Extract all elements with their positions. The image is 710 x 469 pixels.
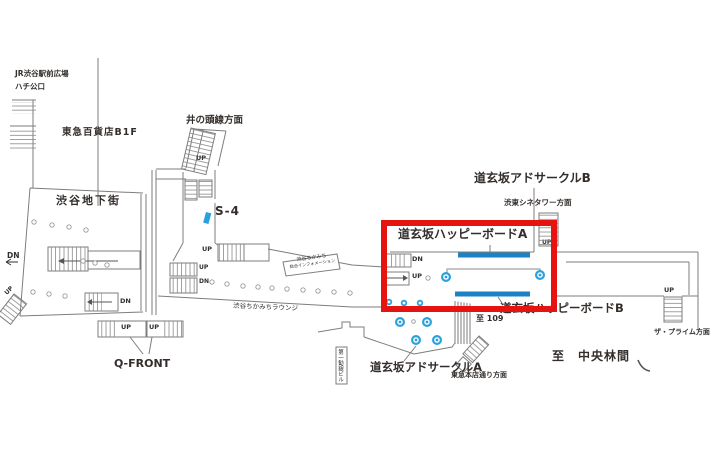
east-up-stair: [218, 244, 244, 261]
up-label-prime: UP: [664, 287, 674, 294]
dn-label-south: DN: [120, 298, 131, 305]
happy-board-a-label: 道玄坂ハッピーボードA: [398, 228, 527, 241]
prime-up-stair: [664, 297, 682, 322]
up-label-qfront-1: UP: [121, 324, 131, 331]
chikagai-stair-landing: [88, 251, 140, 269]
up-label-east-stair: UP: [202, 246, 212, 253]
dn-label-chikagai: DN: [7, 252, 20, 260]
s4-label: S-4: [215, 205, 240, 218]
to-109-label: 至 109: [476, 315, 503, 324]
stairs: [0, 102, 682, 372]
inokashira-label: 井の頭線方面: [186, 116, 243, 126]
adcircle-a-dot: [411, 335, 421, 345]
speaker-dot: [441, 272, 451, 282]
tokyu-honten-label: 東急本店通り方面: [451, 372, 507, 380]
speaker-dot: [535, 270, 545, 280]
up-label-redbox: UP: [412, 273, 422, 280]
chuorinkan-swoosh: [638, 360, 650, 371]
up-label-inokashira: UP: [196, 155, 206, 162]
adcircle-a-dot: [422, 317, 432, 327]
daiichi-building-label: 第一勧銀ビル: [337, 349, 343, 383]
shibuya-chikagai-label: 渋谷地下街: [56, 195, 121, 207]
inokashira-stair: [182, 128, 216, 175]
small-blue-dot: [417, 300, 423, 306]
pillar-bracket: [447, 269, 540, 278]
up-label-west-stair: UP: [199, 265, 208, 272]
qfront-label: Q-FRONT: [114, 358, 170, 370]
jr-plaza-label-line2: ハチ公口: [15, 83, 45, 91]
jr-stair-upper: [12, 102, 36, 114]
up-label-qfront-2: UP: [149, 324, 159, 331]
happy-board-b-bar: [455, 292, 530, 297]
adcircle-a-dot: [432, 335, 442, 345]
west-up-stair: [170, 263, 197, 276]
tokyu-dept-label: 東急百貨店B1F: [62, 128, 138, 138]
adcircle-b-label: 道玄坂アドサークルB: [474, 172, 591, 185]
jr-plaza-label-line1: JR渋谷駅前広場: [15, 70, 69, 78]
small-blue-dot: [401, 300, 407, 306]
mid-stair-left: [185, 180, 197, 200]
station-map-page: JR渋谷駅前広場 ハチ公口 東急百貨店B1F 井の頭線方面 渋谷地下街 S-4 …: [0, 0, 710, 469]
southwest-diag-stair: [0, 294, 27, 324]
cine-tower-label: 渋東シネタワー方面: [504, 199, 572, 207]
mid-stair-right: [199, 180, 212, 197]
east-up-stair-landing: [244, 244, 269, 261]
to-chuo-rinkan-label: 至 中央林間: [552, 350, 630, 363]
dn-label-west-stair: DN: [199, 279, 209, 286]
adcircle-a-dot: [395, 317, 405, 327]
station-map-drawing: [0, 0, 710, 469]
prime-label: ザ・プライム方面: [654, 329, 710, 337]
west-dn-stair: [170, 278, 197, 293]
dn-label-redbox: DN: [412, 256, 423, 263]
jr-stair-lower: [10, 128, 36, 150]
happy-board-a-bar: [458, 253, 530, 258]
s4-marker: [203, 212, 211, 224]
happyboard-b-leader: [498, 297, 502, 303]
